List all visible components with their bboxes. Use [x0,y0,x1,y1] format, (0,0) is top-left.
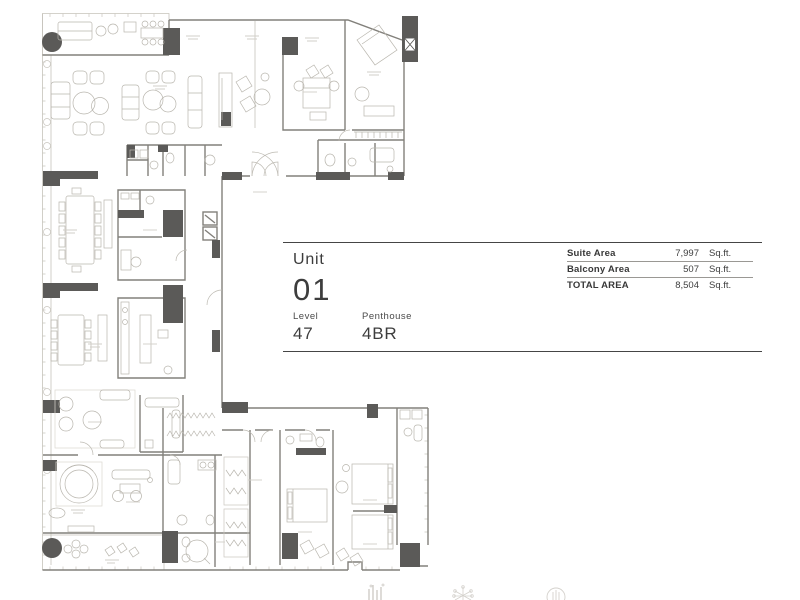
unit-block: Unit 01 [293,251,331,308]
divider-line-top [283,242,762,243]
level-block: Level 47 [293,311,318,344]
row-label: TOTAL AREA [567,280,663,291]
row-value: 507 [663,264,699,275]
column-top-left [42,32,62,52]
unit-label: Unit [293,251,331,269]
row-value: 7,997 [663,248,699,259]
unit-type-block: Penthouse 4BR [362,311,412,344]
snowflake-icon [453,586,474,600]
row-unit: Sq.ft. [709,280,753,291]
area-table: Suite Area 7,997 Sq.ft. Balcony Area 507… [567,246,753,293]
divider-line-bottom [283,351,762,352]
row-label: Balcony Area [567,264,663,275]
row-unit: Sq.ft. [709,248,753,259]
unit-type-value: 4BR [362,324,412,344]
table-row-balcony-area: Balcony Area 507 Sq.ft. [567,262,753,278]
row-unit: Sq.ft. [709,264,753,275]
row-value: 8,504 [663,280,699,291]
info-panel: Unit 01 Level 47 Penthouse 4BR Suite Are… [283,242,762,352]
row-label: Suite Area [567,248,663,259]
table-row-suite-area: Suite Area 7,997 Sq.ft. [567,246,753,262]
level-value: 47 [293,324,318,344]
unit-number: 01 [293,272,331,308]
table-row-total-area: TOTAL AREA 8,504 Sq.ft. [567,278,753,293]
circle-emblem-icon [547,588,565,600]
unit-type-label: Penthouse [362,311,412,322]
column-bottom-left [42,538,62,558]
elevator-x-icon [405,38,416,51]
skyline-icon [369,584,384,600]
level-label: Level [293,311,318,322]
